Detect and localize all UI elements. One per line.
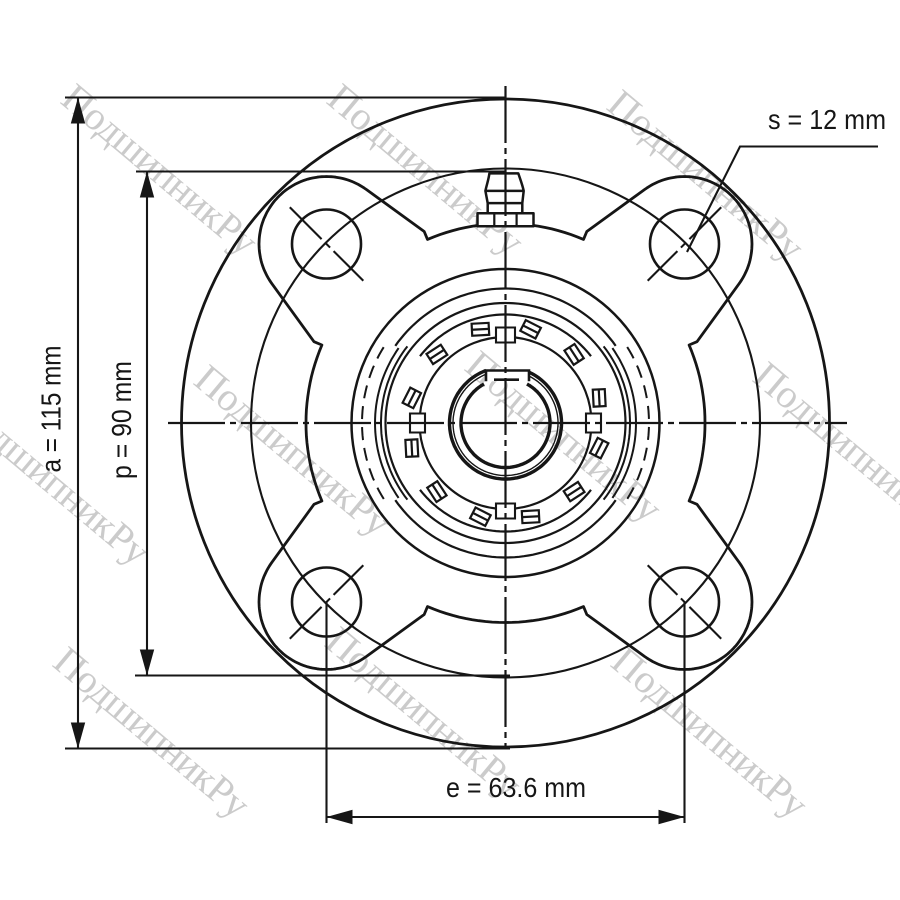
svg-text:p = 90 mm: p = 90 mm [106, 361, 137, 479]
svg-text:a = 115 mm: a = 115 mm [36, 346, 67, 473]
svg-text:e = 63.6 mm: e = 63.6 mm [446, 772, 586, 803]
svg-text:s = 12 mm: s = 12 mm [768, 104, 886, 135]
